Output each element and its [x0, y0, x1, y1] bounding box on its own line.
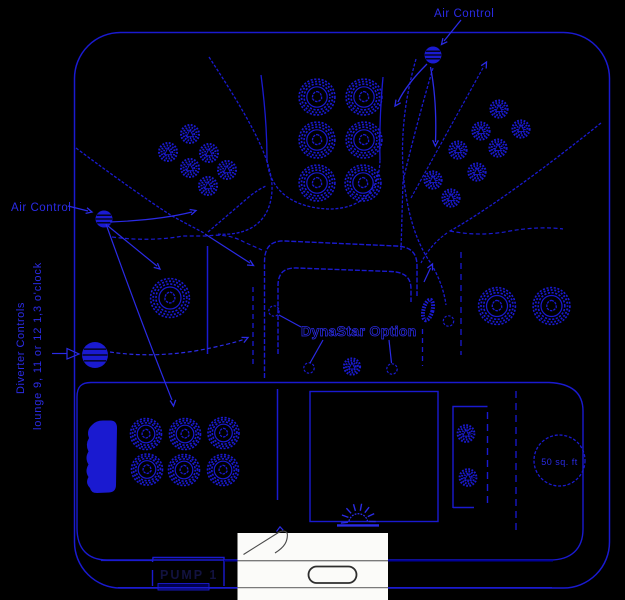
svg-text:lounge 9, 11 or 12 1,3 o'clock: lounge 9, 11 or 12 1,3 o'clock — [32, 262, 44, 430]
svg-text:Diverter Controls: Diverter Controls — [15, 302, 27, 394]
svg-text:PUMP 1: PUMP 1 — [160, 568, 218, 582]
svg-text:Air Control: Air Control — [434, 8, 494, 20]
svg-text:50 sq. ft: 50 sq. ft — [541, 457, 578, 467]
svg-text:Air Control: Air Control — [11, 202, 71, 214]
svg-text:DynaStar Option: DynaStar Option — [301, 323, 417, 339]
